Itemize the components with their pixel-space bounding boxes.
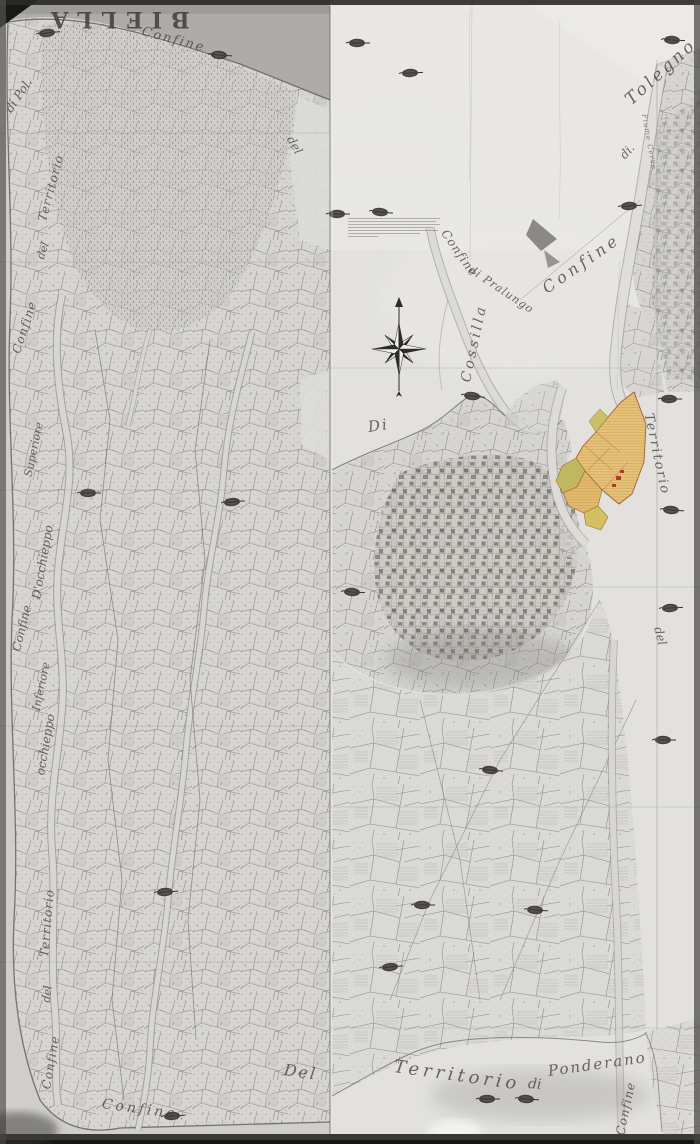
left-territory-parcels: [7, 17, 330, 1130]
scanned-historical-map: BIELLA Confine del Tolegno di. Fiume Cer…: [0, 0, 700, 1144]
map-artwork: [0, 0, 700, 1144]
